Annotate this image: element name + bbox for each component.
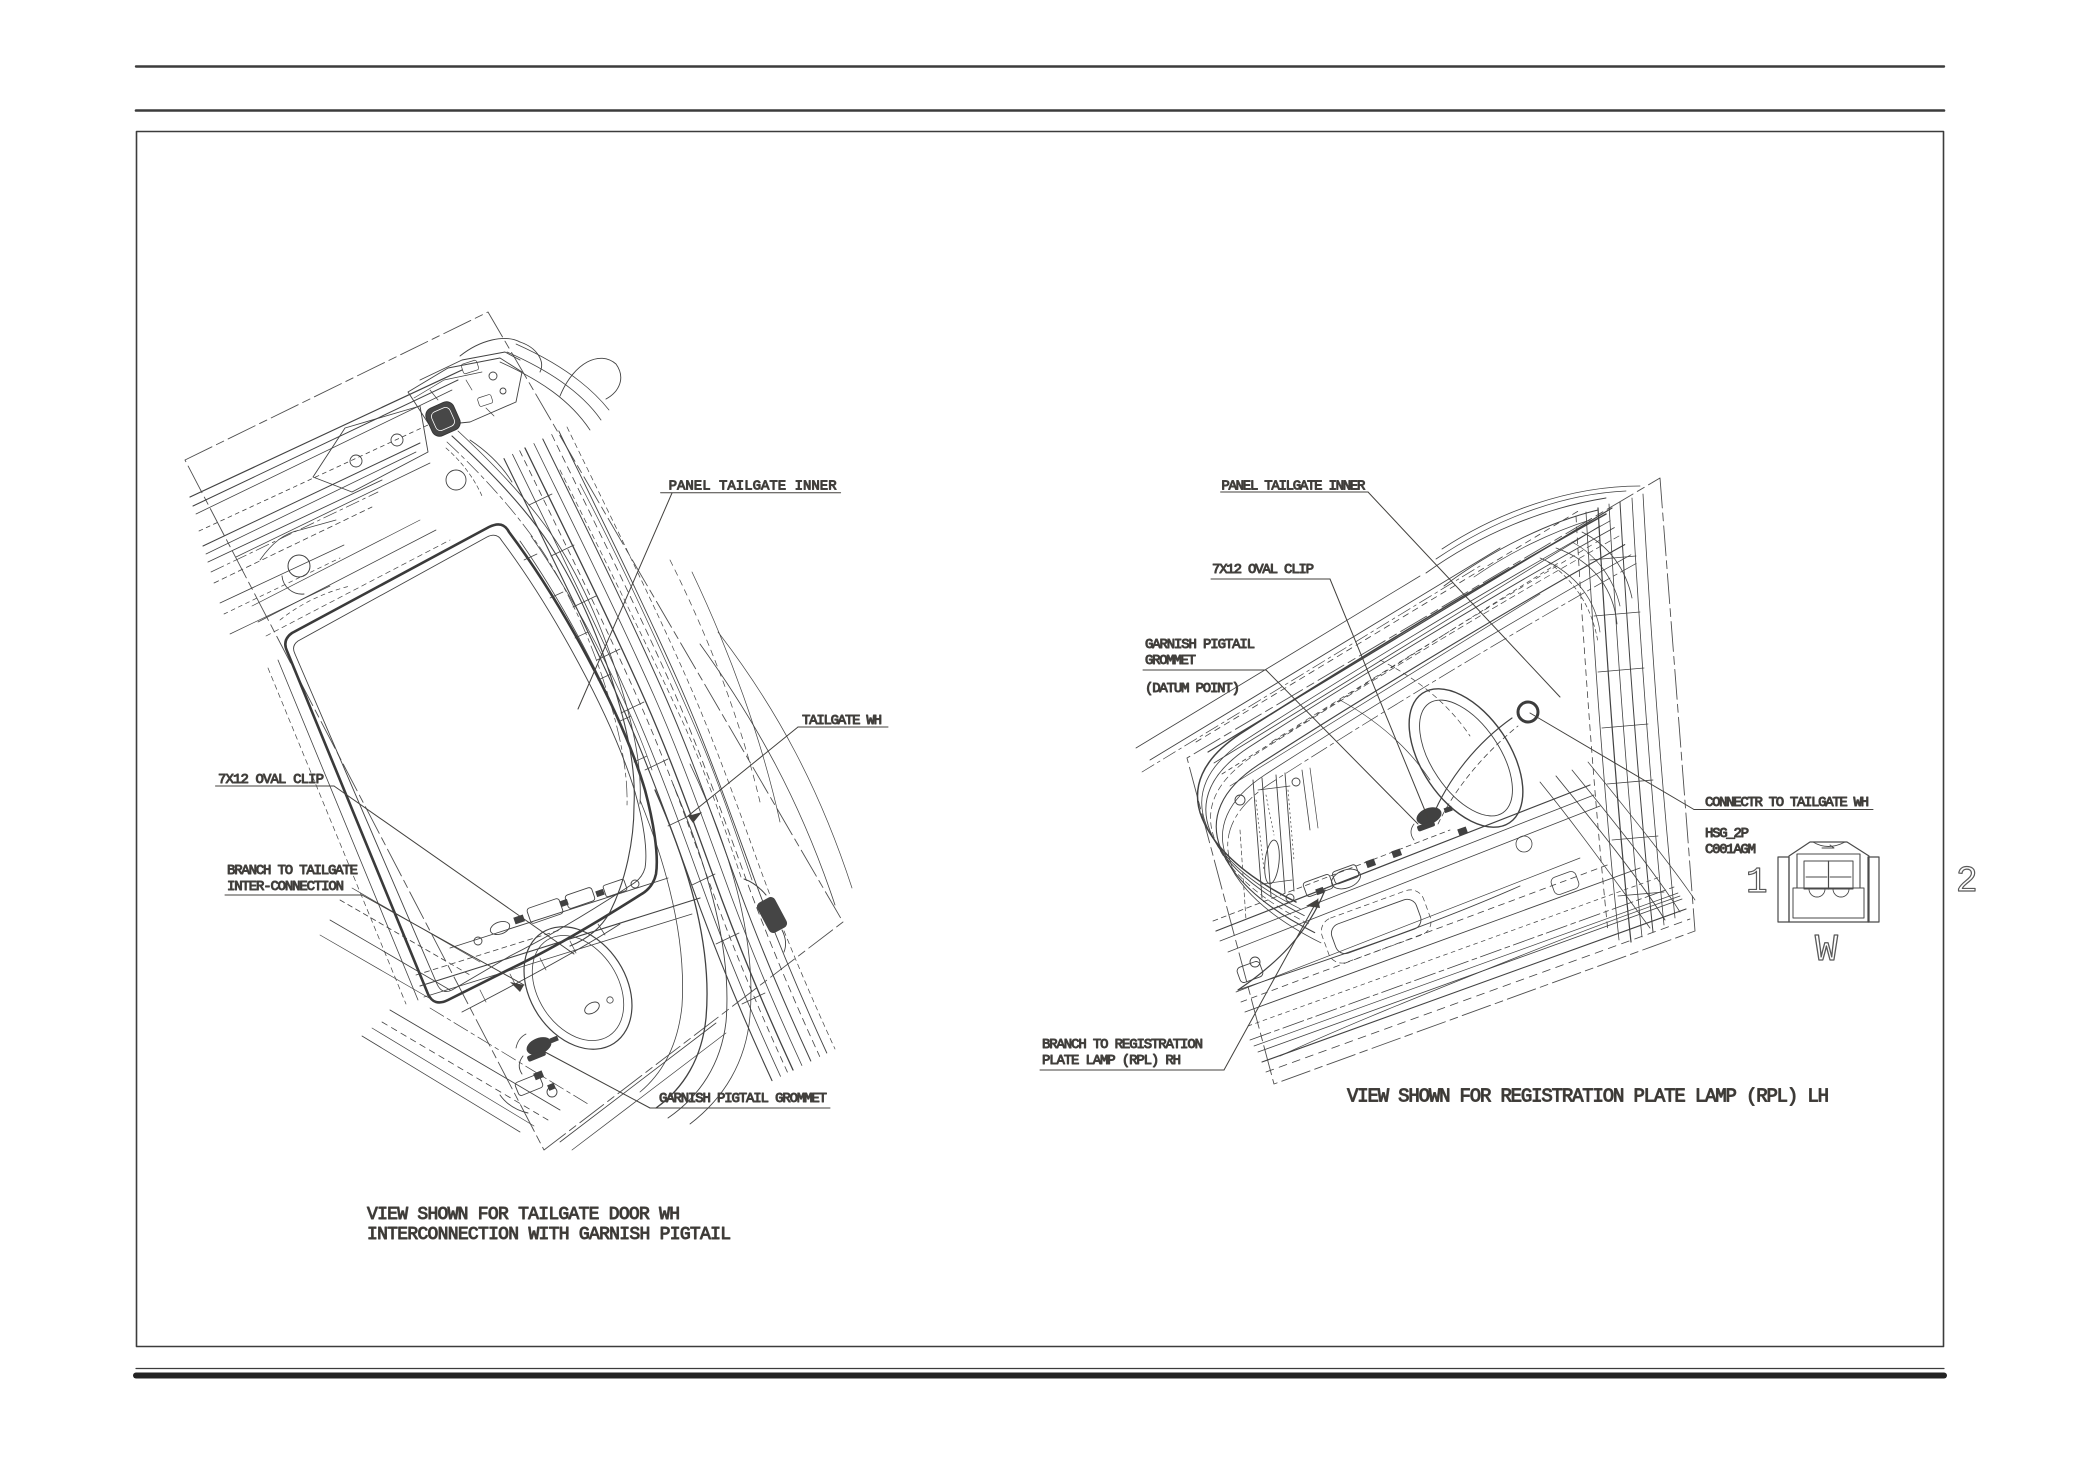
- svg-text:W: W: [1815, 929, 1838, 972]
- svg-text:1: 1: [1746, 862, 1768, 903]
- svg-text:INTERCONNECTION WITH GARNISH P: INTERCONNECTION WITH GARNISH PIGTAIL: [367, 1225, 731, 1245]
- svg-text:VIEW SHOWN FOR REGISTRATION PL: VIEW SHOWN FOR REGISTRATION PLATE LAMP (…: [1347, 1086, 1829, 1108]
- svg-text:VIEW SHOWN FOR TAILGATE DOOR W: VIEW SHOWN FOR TAILGATE DOOR WH: [367, 1205, 680, 1225]
- svg-text:PLATE LAMP (RPL) RH: PLATE LAMP (RPL) RH: [1042, 1053, 1181, 1069]
- svg-text:GARNISH PIGTAIL GROMMET: GARNISH PIGTAIL GROMMET: [659, 1091, 827, 1107]
- svg-text:GROMMET: GROMMET: [1145, 653, 1196, 669]
- svg-text:INTER-CONNECTION: INTER-CONNECTION: [227, 879, 344, 895]
- svg-text:BRANCH TO REGISTRATION: BRANCH TO REGISTRATION: [1042, 1037, 1203, 1053]
- svg-text:HSG_2P: HSG_2P: [1705, 826, 1749, 842]
- svg-text:GARNISH PIGTAIL: GARNISH PIGTAIL: [1145, 637, 1255, 653]
- svg-text:C001AGM: C001AGM: [1705, 842, 1756, 858]
- svg-text:BRANCH TO TAILGATE: BRANCH TO TAILGATE: [227, 863, 358, 879]
- svg-text:(DATUM POINT): (DATUM POINT): [1145, 681, 1240, 697]
- svg-text:PANEL TAILGATE INNER: PANEL TAILGATE INNER: [669, 479, 838, 495]
- svg-text:7X12 OVAL CLIP: 7X12 OVAL CLIP: [1212, 562, 1314, 578]
- svg-text:CONNECTR TO TAILGATE WH: CONNECTR TO TAILGATE WH: [1705, 795, 1869, 811]
- svg-text:2: 2: [1956, 861, 1978, 902]
